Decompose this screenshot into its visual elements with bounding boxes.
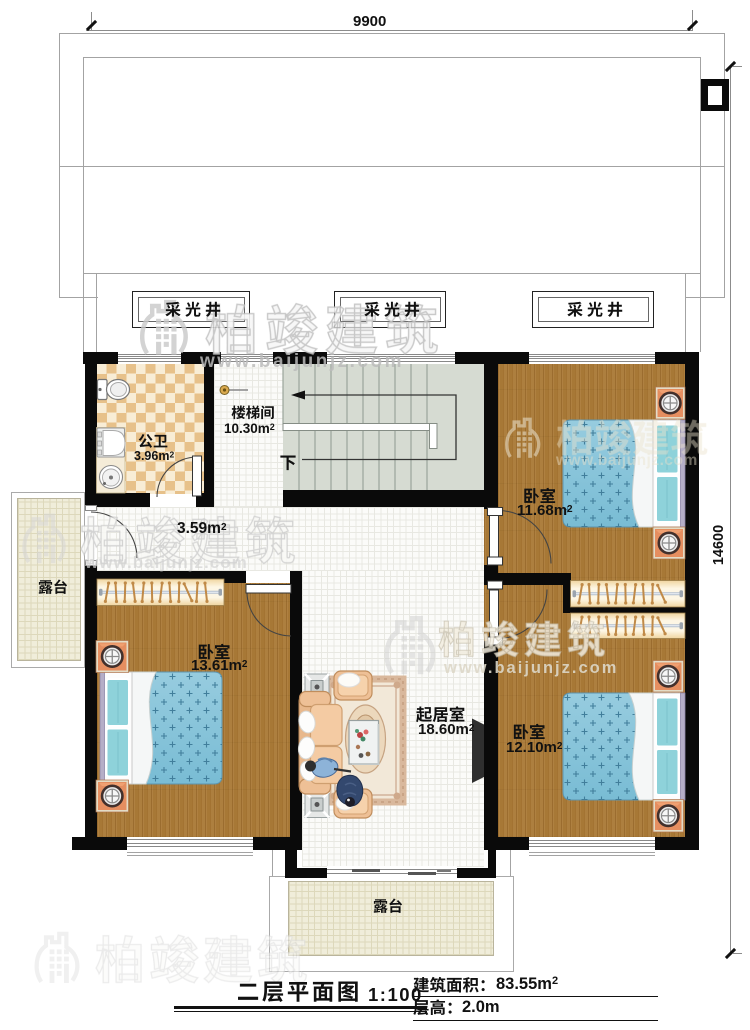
svg-text:www.baijunjz.com: www.baijunjz.com [199,351,404,372]
svg-text:www.baijunjz.com: www.baijunjz.com [555,452,698,469]
svg-text:www.baijunjz.com: www.baijunjz.com [443,659,618,677]
svg-text:www.baijunjz.com: www.baijunjz.com [84,553,248,572]
